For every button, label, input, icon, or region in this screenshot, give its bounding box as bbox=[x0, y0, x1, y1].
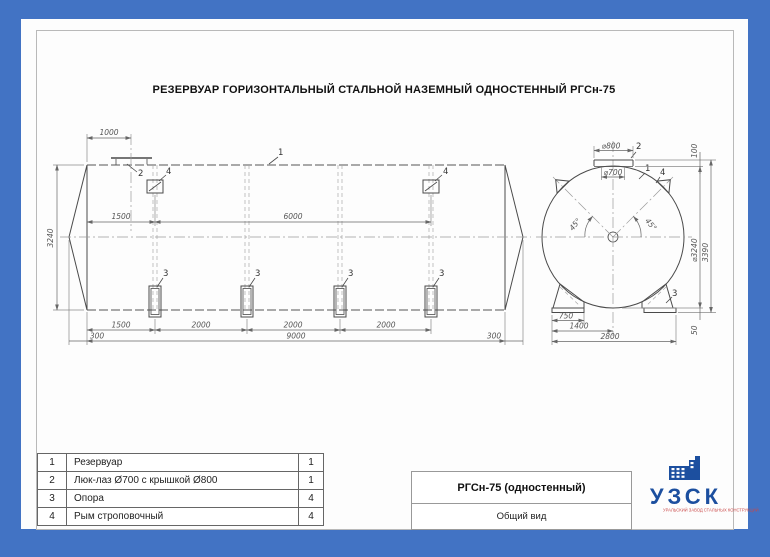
supports-side bbox=[149, 286, 437, 317]
dim-2000-c: 2000 bbox=[376, 321, 395, 330]
dimension-lines-side bbox=[57, 138, 523, 341]
angle-45-left: 45° bbox=[567, 216, 583, 232]
dim-2000-a: 2000 bbox=[191, 321, 210, 330]
dim-d700: ⌀700 bbox=[604, 168, 623, 177]
dim-6000: 6000 bbox=[283, 212, 302, 221]
dim-1500-top: 1500 bbox=[111, 212, 130, 221]
dim-100: 100 bbox=[690, 143, 699, 158]
part-label-4-end: 4 bbox=[660, 168, 665, 178]
part-label-3d: 3 bbox=[439, 269, 444, 279]
manhole-cap-end bbox=[594, 160, 633, 166]
dim-1000: 1000 bbox=[99, 128, 118, 137]
part-number: 4 bbox=[38, 508, 67, 526]
part-qty: 4 bbox=[299, 490, 324, 508]
angle-arc-left bbox=[585, 217, 593, 238]
parts-table: 1 Резервуар 1 2 Люк-лаз Ø700 с крышкой Ø… bbox=[37, 453, 324, 526]
title-block: РГСн-75 (одностенный) Общий вид bbox=[411, 471, 632, 530]
logo-text: УЗСК bbox=[636, 486, 736, 508]
part-number: 2 bbox=[38, 472, 67, 490]
part-name: Люк-лаз Ø700 с крышкой Ø800 bbox=[67, 472, 299, 490]
part-qty: 1 bbox=[299, 472, 324, 490]
part-qty: 4 bbox=[299, 508, 324, 526]
extension-lines-side bbox=[53, 134, 523, 345]
table-row: 2 Люк-лаз Ø700 с крышкой Ø800 1 bbox=[38, 472, 324, 490]
company-logo: УЗСК УРАЛЬСКИЙ ЗАВОД СТАЛЬНЫХ КОНСТРУКЦИ… bbox=[636, 456, 736, 518]
part-label-3a: 3 bbox=[163, 269, 168, 279]
dim-d800: ⌀800 bbox=[602, 142, 621, 151]
angle-45-right: 45° bbox=[643, 216, 659, 232]
part-label-4b: 4 bbox=[443, 167, 448, 177]
table-row: 3 Опора 4 bbox=[38, 490, 324, 508]
manhole-neck bbox=[116, 159, 147, 165]
dim-3390: 3390 bbox=[701, 243, 710, 262]
part-label-2: 2 bbox=[138, 169, 143, 179]
dim-d3240: ⌀3240 bbox=[690, 238, 699, 262]
factory-icon bbox=[669, 456, 703, 480]
dim-1500-bottom: 1500 bbox=[111, 321, 130, 330]
part-label-3b: 3 bbox=[255, 269, 260, 279]
part-label-3c: 3 bbox=[348, 269, 353, 279]
part-number: 1 bbox=[38, 454, 67, 472]
side-view: 1 2 4 4 3 3 3 3 1000 1500 6000 3240 1500… bbox=[46, 128, 531, 345]
dim-3240-side: 3240 bbox=[46, 228, 55, 247]
angle-arc-right bbox=[634, 217, 642, 238]
part-label-1: 1 bbox=[278, 148, 283, 158]
model-designation: РГСн-75 (одностенный) bbox=[412, 472, 631, 504]
end-view: 45° 45° 2 1 4 3 bbox=[536, 141, 716, 345]
part-label-1-end: 1 bbox=[645, 164, 650, 174]
logo-tagline: УРАЛЬСКИЙ ЗАВОД СТАЛЬНЫХ КОНСТРУКЦИЙ bbox=[663, 508, 709, 513]
shell-seam-lines bbox=[153, 165, 433, 310]
table-row: 1 Резервуар 1 bbox=[38, 454, 324, 472]
dim-9000: 9000 bbox=[286, 332, 305, 341]
dim-1400: 1400 bbox=[569, 322, 588, 331]
screenshot-root: { "drawing": { "title": "РЕЗЕРВУАР ГОРИЗ… bbox=[0, 0, 770, 557]
dim-50: 50 bbox=[690, 325, 699, 335]
part-qty: 1 bbox=[299, 454, 324, 472]
lifting-lug-symbols bbox=[147, 180, 439, 193]
part-label-3-end: 3 bbox=[672, 289, 677, 299]
dim-2000-b: 2000 bbox=[283, 321, 302, 330]
part-name: Рым строповочный bbox=[67, 508, 299, 526]
part-name: Опора bbox=[67, 490, 299, 508]
dim-300-left: 300 bbox=[90, 332, 105, 341]
dim-300-right: 300 bbox=[487, 332, 502, 341]
part-label-4a: 4 bbox=[166, 167, 171, 177]
dim-2800: 2800 bbox=[600, 332, 619, 341]
part-number: 3 bbox=[38, 490, 67, 508]
tank-ends bbox=[69, 165, 523, 310]
view-name: Общий вид bbox=[412, 504, 631, 529]
part-name: Резервуар bbox=[67, 454, 299, 472]
part-label-2-end: 2 bbox=[636, 142, 641, 152]
table-row: 4 Рым строповочный 4 bbox=[38, 508, 324, 526]
tank-shell-lines bbox=[87, 165, 505, 310]
dim-750: 750 bbox=[559, 312, 574, 321]
